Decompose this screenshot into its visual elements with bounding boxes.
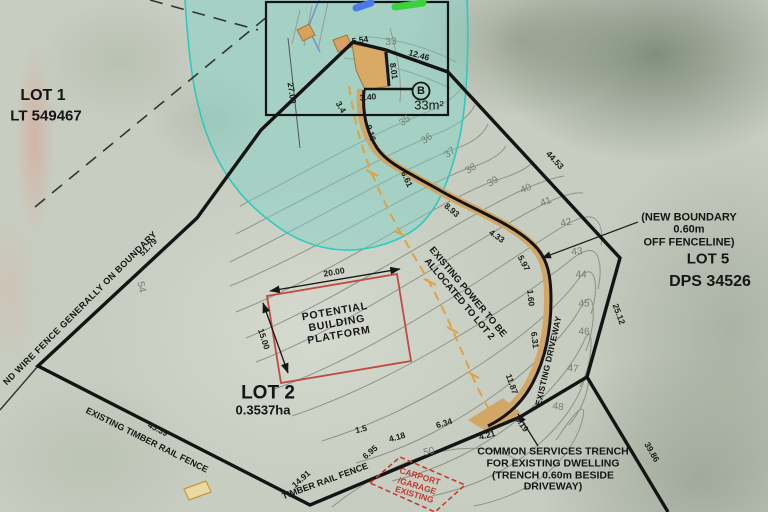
- carport-rect: [370, 457, 465, 512]
- water-marker: [356, 3, 371, 8]
- utility-marker: [395, 3, 423, 7]
- plan-linework: [0, 0, 768, 512]
- building-platform-rect: [267, 274, 411, 383]
- survey-plan: LOT 1 LT 549467 LOT 2 0.3537ha LOT 5 DPS…: [0, 0, 768, 512]
- overlay-region: [185, 0, 468, 250]
